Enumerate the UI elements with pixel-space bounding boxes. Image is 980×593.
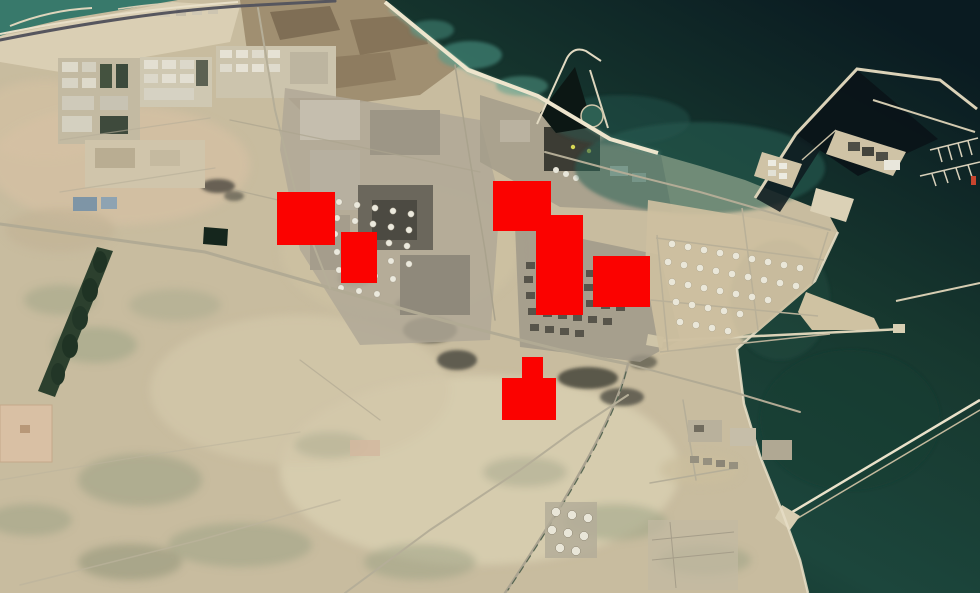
satellite-canvas — [0, 0, 980, 593]
satellite-map — [0, 0, 980, 593]
